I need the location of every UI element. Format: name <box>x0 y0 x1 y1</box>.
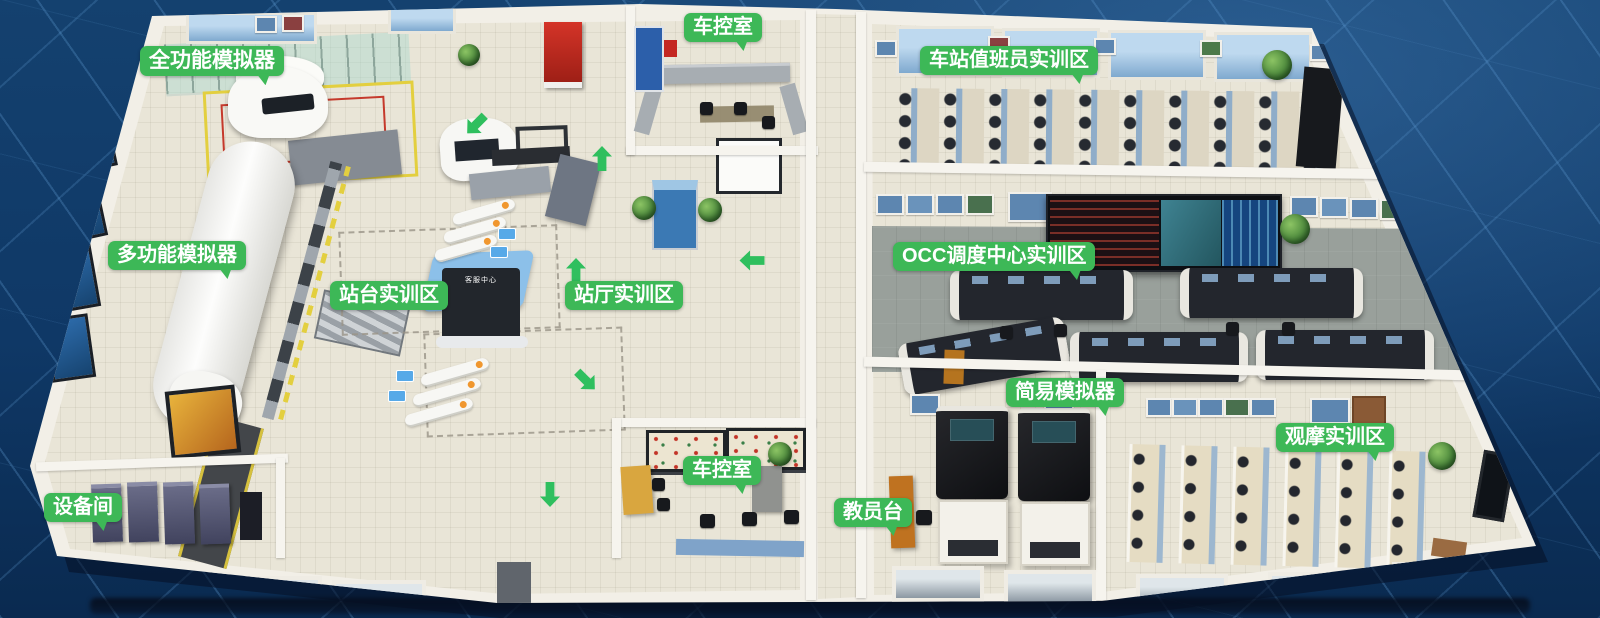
picture-frame <box>1320 197 1348 218</box>
chair <box>762 116 775 129</box>
window <box>892 566 984 602</box>
door <box>497 562 531 604</box>
zone-label-equipment-room: 设备间 <box>44 493 122 522</box>
picture-frame <box>1350 198 1378 219</box>
dispatcher-console <box>1180 268 1363 318</box>
zone-label-text: 车控室 <box>693 16 753 38</box>
chair <box>1282 322 1295 335</box>
picture-frame <box>255 16 277 33</box>
zone-label-instructor-station: 教员台 <box>834 498 912 527</box>
zone-label-simple-simulator: 简易模拟器 <box>1006 378 1124 407</box>
server-rack <box>127 481 159 542</box>
chair <box>734 102 747 115</box>
chair <box>1226 322 1239 335</box>
plant <box>1428 442 1456 470</box>
blue-direction-sticker <box>498 228 516 240</box>
chair <box>1000 326 1013 339</box>
zone-label-full-function-simulator: 全功能模拟器 <box>140 46 284 76</box>
interior-wall <box>612 418 621 558</box>
zone-label-text: OCC调度中心实训区 <box>902 245 1086 267</box>
zone-label-multi-function-simulator: 多功能模拟器 <box>108 241 246 270</box>
server-rack <box>199 483 231 544</box>
zone-label-text: 全功能模拟器 <box>149 49 275 72</box>
picture-frame <box>966 194 994 215</box>
picture-frame <box>1198 398 1224 417</box>
service-kiosk-base <box>436 336 528 348</box>
picture-frame <box>1310 398 1350 424</box>
picture-frame <box>1250 398 1276 417</box>
chair <box>742 512 757 526</box>
chair <box>916 510 932 525</box>
plant <box>768 442 792 466</box>
zone-label-text: 观摩实训区 <box>1285 426 1385 448</box>
picture-frame <box>876 194 904 215</box>
plant <box>1280 214 1310 244</box>
dispatcher-console <box>950 270 1133 320</box>
zone-label-station-attendant-training-area: 车站值班员实训区 <box>920 46 1098 75</box>
zone-label-text: 教员台 <box>843 501 903 523</box>
zone-label-vehicle-control-room-bottom: 车控室 <box>683 456 761 485</box>
simulator-booth-black <box>936 406 1008 499</box>
picture-frame <box>906 194 934 215</box>
picture-frame <box>936 194 964 215</box>
screenshot-root: 客服中心 <box>0 0 1600 618</box>
zone-label-text: 多功能模拟器 <box>117 244 237 266</box>
ticket-vending-machine <box>652 180 698 250</box>
zone-label-occ-dispatch-center: OCC调度中心实训区 <box>893 242 1095 271</box>
server-rack-black <box>240 492 262 540</box>
picture-frame <box>1200 40 1222 57</box>
picture-frame <box>1224 398 1250 417</box>
window <box>1004 570 1096 606</box>
instructor-desk-yellow <box>620 465 653 515</box>
service-kiosk-body: 客服中心 <box>442 268 520 340</box>
wall-artwork <box>165 385 242 460</box>
fire-extinguisher-box <box>664 40 677 57</box>
simulator-booth-black <box>1018 408 1090 501</box>
zone-label-platform-training-area: 站台实训区 <box>330 281 448 310</box>
plant <box>698 198 722 222</box>
service-kiosk-sign: 客服中心 <box>442 275 520 285</box>
blue-cabinet <box>634 26 664 92</box>
zone-label-text: 简易模拟器 <box>1015 381 1115 403</box>
chair <box>652 478 665 491</box>
blue-table <box>676 539 804 557</box>
interior-wall <box>276 458 285 558</box>
corridor-wall-left <box>806 10 816 600</box>
zone-label-text: 站台实训区 <box>339 284 439 306</box>
plant <box>632 196 656 220</box>
chair <box>657 498 670 511</box>
zone-label-observation-training-area: 观摩实训区 <box>1276 423 1394 452</box>
video-wall-cctv-image <box>1161 200 1221 266</box>
picture-frame <box>875 40 897 57</box>
window <box>1108 30 1206 80</box>
zone-label-text: 站厅实训区 <box>574 284 674 306</box>
plant <box>1262 50 1292 80</box>
red-vending-machine <box>544 22 582 88</box>
observation-cubicles <box>1127 444 1440 570</box>
zone-label-text: 车站值班员实训区 <box>929 49 1089 71</box>
window <box>388 6 456 34</box>
picture-frame <box>1146 398 1172 417</box>
server-rack <box>163 481 195 544</box>
interior-wall <box>612 418 816 427</box>
video-wall-charts <box>1222 200 1278 266</box>
chair <box>1054 324 1067 337</box>
zone-label-station-hall-training-area: 站厅实训区 <box>565 281 683 310</box>
zone-label-vehicle-control-room-top: 车控室 <box>684 13 762 42</box>
zone-label-text: 车控室 <box>692 459 752 481</box>
chair <box>700 514 715 528</box>
plant <box>458 44 480 66</box>
zone-label-text: 设备间 <box>53 496 113 518</box>
simulator-booth-white <box>938 500 1008 564</box>
chair <box>784 510 799 524</box>
chair <box>700 102 713 115</box>
picture-frame <box>282 15 304 32</box>
blue-direction-sticker <box>388 390 406 402</box>
blue-direction-sticker <box>396 370 414 382</box>
simulator-booth-white <box>1020 502 1090 566</box>
control-console-back <box>652 63 790 84</box>
picture-frame <box>1172 398 1198 417</box>
blue-direction-sticker <box>490 246 508 258</box>
interior-wall <box>626 146 818 155</box>
